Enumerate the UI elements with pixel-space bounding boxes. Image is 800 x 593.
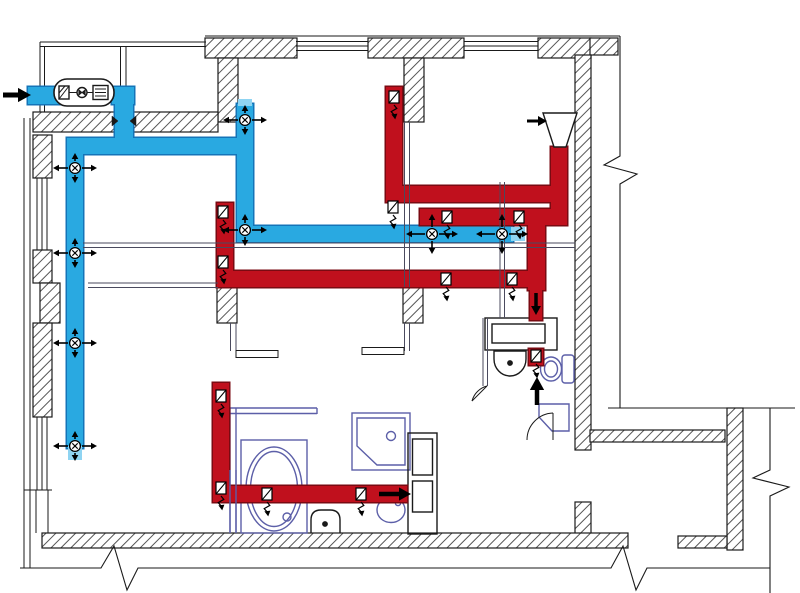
fixture [323,522,327,526]
wall-segment [33,135,52,178]
wall-segment [205,38,297,58]
supply-diffuser [53,328,97,358]
fixture [357,418,405,465]
shower-cabin [352,413,410,470]
break-line [20,546,770,590]
kitchen-hood [543,113,577,147]
supply-air-stream [238,99,252,106]
fixture [472,386,487,401]
wall-segment [33,250,52,283]
door-leaf [236,351,278,358]
wall-segment [590,38,618,55]
break-line [604,36,637,408]
wall-segment [727,408,743,550]
wc-counter [485,318,557,350]
wall-segment [218,58,238,122]
wall-segment [404,58,424,122]
washing-machine [539,404,569,431]
fixture [562,355,574,383]
fixture [413,481,433,512]
wall-segment [575,55,591,450]
wall-segment [678,536,727,548]
fixture [545,361,558,377]
supply-diffuser [53,431,97,461]
fixture [413,439,433,475]
wall-segment [217,287,237,323]
shower-drain [387,432,396,441]
wall-segment [590,430,725,442]
wall-segment [403,287,423,323]
wall-segment [33,323,52,417]
wall-segment [40,283,60,323]
floor-plan-page [0,0,800,593]
wall-segment [42,533,628,548]
plan-svg [0,0,800,593]
supply-diffuser [53,153,97,183]
break-line [753,408,789,593]
door-swing [527,413,553,440]
wall-segment [368,38,464,58]
door-leaf [362,348,404,355]
fixture [508,361,512,365]
